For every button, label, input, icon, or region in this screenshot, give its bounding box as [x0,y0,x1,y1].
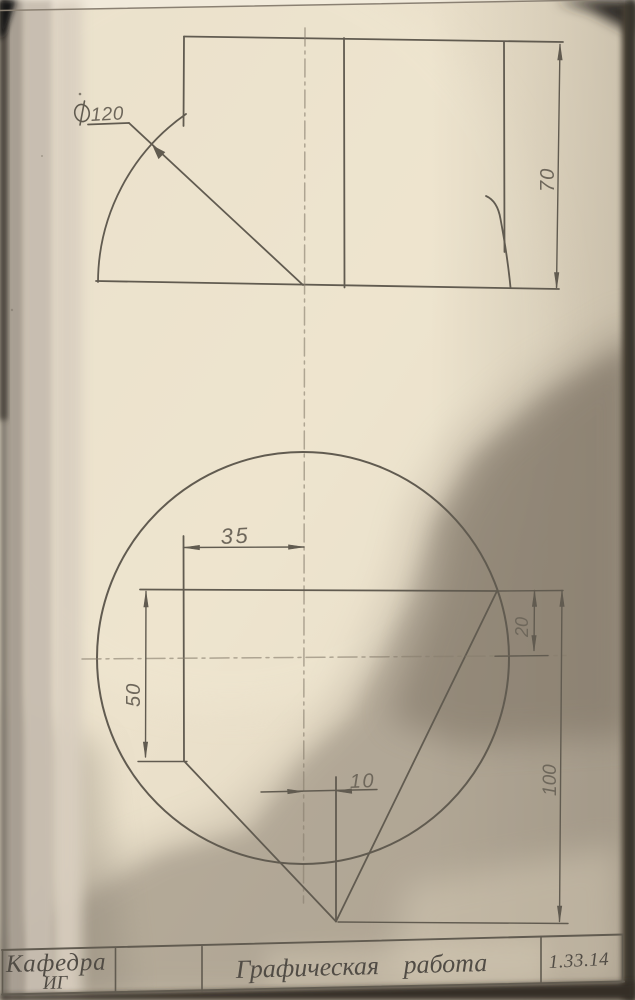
svg-text:1.33.14: 1.33.14 [548,949,610,973]
svg-text:35: 35 [220,522,251,549]
svg-text:ИГ: ИГ [42,972,69,994]
svg-text:70: 70 [537,168,559,192]
svg-text:120: 120 [90,103,124,126]
svg-text:100: 100 [540,764,561,796]
svg-text:20: 20 [512,617,532,638]
svg-text:50: 50 [123,683,145,707]
svg-text:10: 10 [349,770,375,793]
